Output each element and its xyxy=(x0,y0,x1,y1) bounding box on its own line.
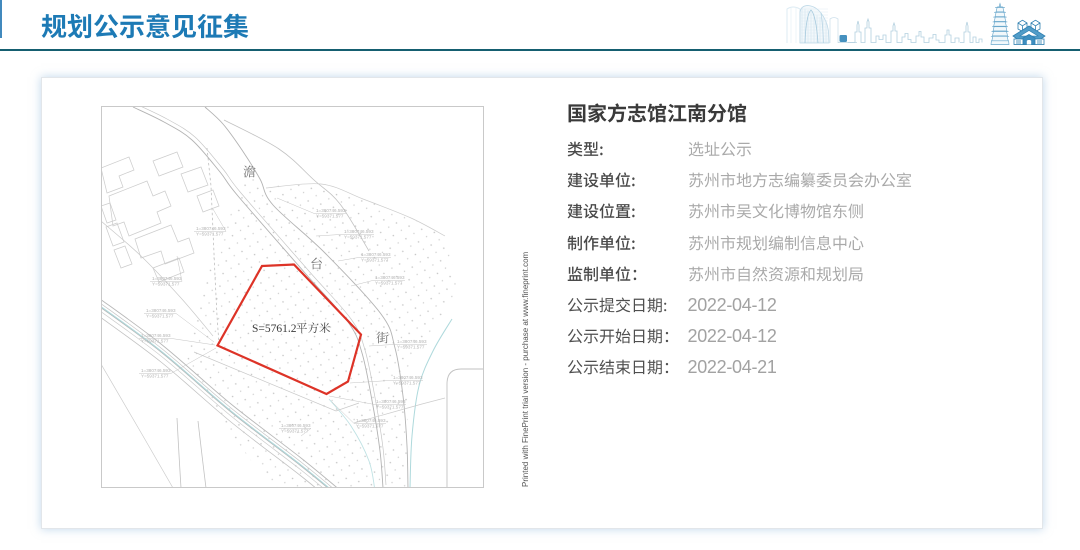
svg-text:Y=59371.577: Y=59371.577 xyxy=(196,231,224,236)
svg-text:Y=59371.577: Y=59371.577 xyxy=(375,280,403,285)
svg-text:Y=59371.577: Y=59371.577 xyxy=(344,234,372,239)
svg-text:Y=59371.577: Y=59371.577 xyxy=(393,380,421,385)
svg-text:Y=59371.577: Y=59371.577 xyxy=(152,281,180,286)
svg-text:Y=59371.577: Y=59371.577 xyxy=(376,404,404,409)
svg-text:Y=59371.577: Y=59371.577 xyxy=(361,257,389,262)
svg-text:Y=59371.577: Y=59371.577 xyxy=(316,213,344,218)
svg-text:Y=59371.577: Y=59371.577 xyxy=(141,373,169,378)
svg-text:Y=59371.577: Y=59371.577 xyxy=(146,313,174,318)
svg-text:Y=59371.577: Y=59371.577 xyxy=(141,338,169,343)
svg-text:Y=59371.577: Y=59371.577 xyxy=(397,344,425,349)
svg-text:Y=59371.577: Y=59371.577 xyxy=(281,428,309,433)
svg-text:Y=59371.577: Y=59371.577 xyxy=(356,423,384,428)
